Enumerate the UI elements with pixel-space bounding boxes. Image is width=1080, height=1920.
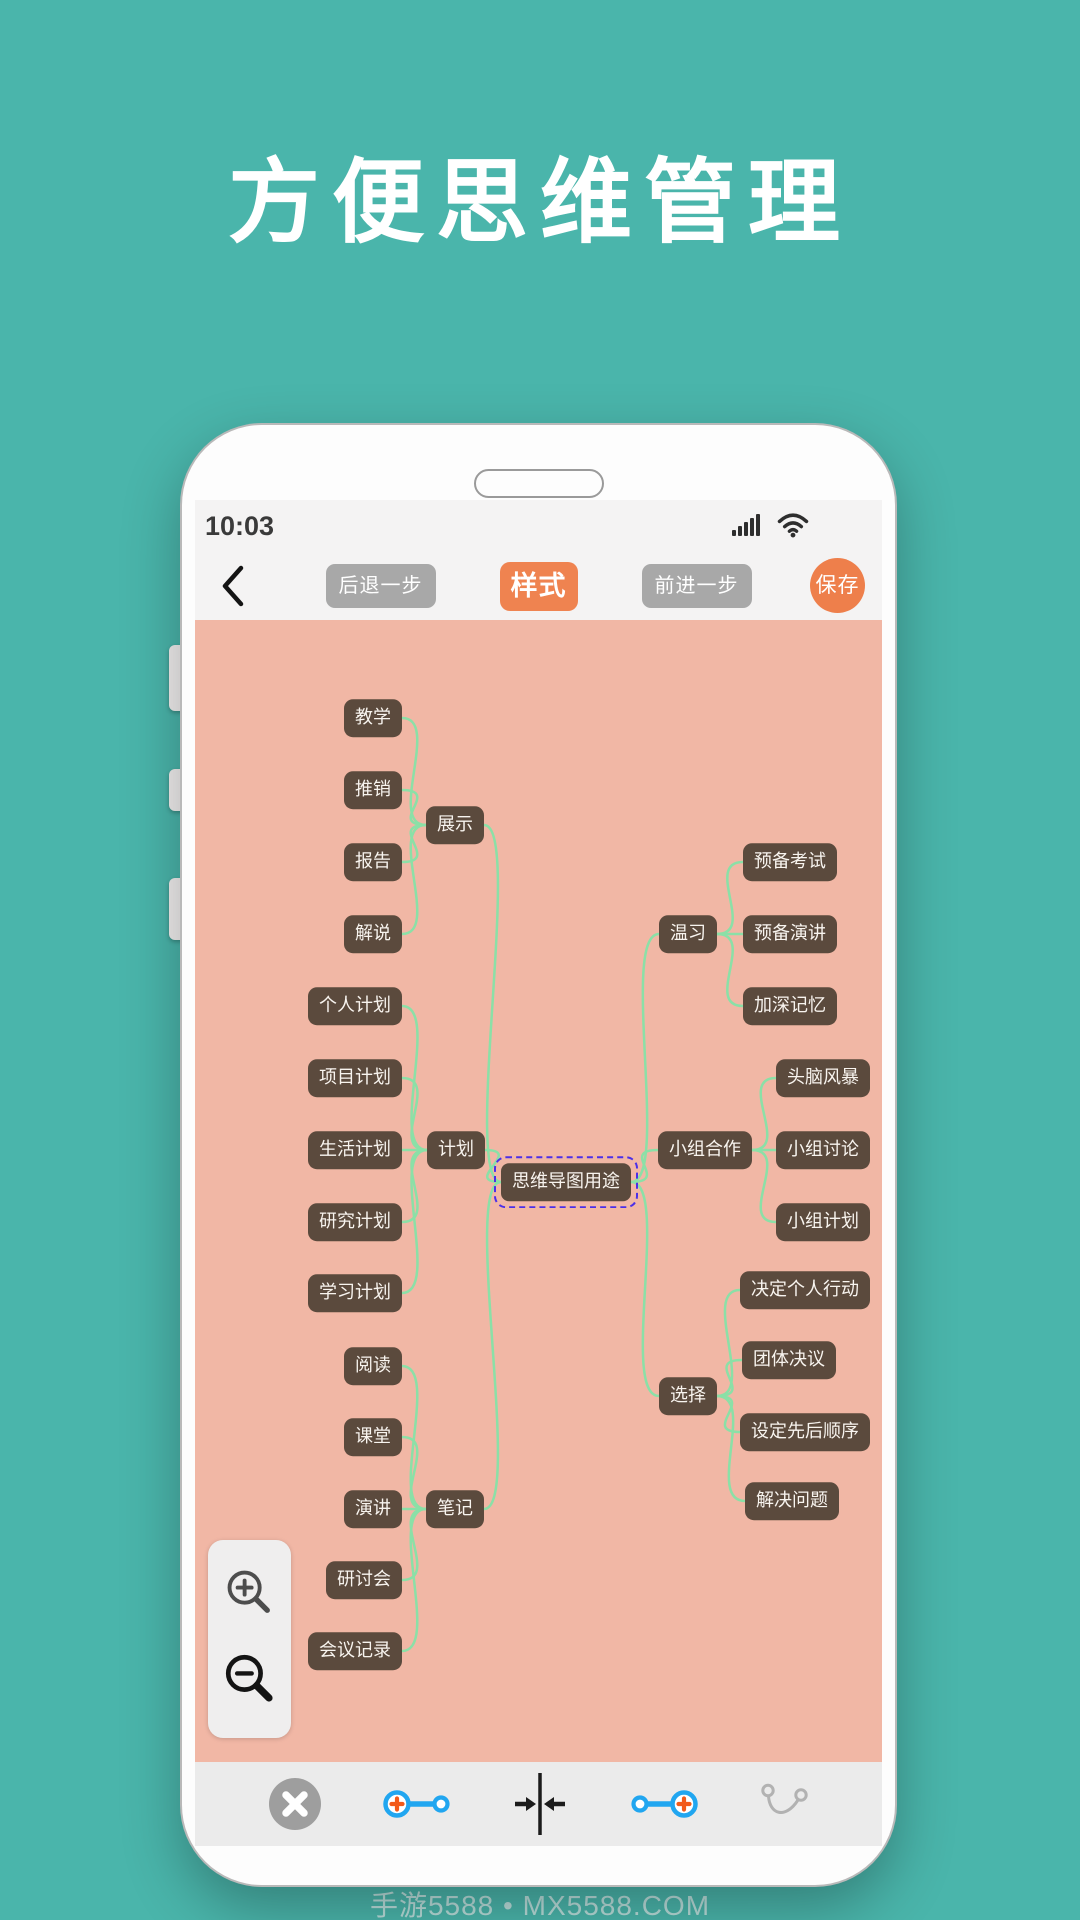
mindmap-edge <box>484 825 501 1182</box>
zoom-in-button[interactable] <box>222 1565 278 1626</box>
mindmap-node-gerenjihua[interactable]: 个人计划 <box>308 987 402 1025</box>
mindmap-node-jueding[interactable]: 决定个人行动 <box>740 1271 870 1309</box>
mindmap-node-jiaoxue[interactable]: 教学 <box>344 699 402 737</box>
zoom-out-button[interactable] <box>221 1650 279 1713</box>
mindmap-node-xuexijihua[interactable]: 学习计划 <box>308 1274 402 1312</box>
mindmap-node-tounaofengbao[interactable]: 头脑风暴 <box>776 1059 870 1097</box>
mindmap-node-huiyijilu[interactable]: 会议记录 <box>308 1632 402 1670</box>
mindmap-node-biji[interactable]: 笔记 <box>426 1490 484 1528</box>
mindmap-node-xiangmujihua[interactable]: 项目计划 <box>308 1059 402 1097</box>
mindmap-node-jieshuo[interactable]: 解说 <box>344 915 402 953</box>
mindmap-node-shenghuojihua[interactable]: 生活计划 <box>308 1131 402 1169</box>
mindmap-node-baogao[interactable]: 报告 <box>344 843 402 881</box>
mindmap-node-zhanshi[interactable]: 展示 <box>426 806 484 844</box>
mindmap-node-sheding[interactable]: 设定先后顺序 <box>740 1413 870 1451</box>
mindmap-edge <box>631 1182 659 1396</box>
mindmap-node-tuixiao[interactable]: 推销 <box>344 771 402 809</box>
mindmap-node-jiejue[interactable]: 解决问题 <box>745 1482 839 1520</box>
close-icon <box>268 1777 322 1831</box>
connection-style-button[interactable] <box>759 1782 809 1826</box>
connection-style-icon <box>759 1782 809 1826</box>
save-button[interactable]: 保存 <box>810 558 865 613</box>
style-button[interactable]: 样式 <box>500 562 578 611</box>
mindmap-node-jiashenjiyi[interactable]: 加深记忆 <box>743 987 837 1025</box>
mindmap-edge <box>717 862 743 934</box>
status-bar: 10:03 <box>195 500 882 552</box>
add-node-left-icon <box>381 1783 453 1825</box>
zoom-panel <box>208 1540 291 1738</box>
phone-speaker <box>474 469 604 498</box>
mindmap-edge <box>484 1182 501 1509</box>
phone-frame: 10:03 <box>182 425 895 1885</box>
mindmap-node-yuedu[interactable]: 阅读 <box>344 1347 402 1385</box>
mindmap-node-ketang[interactable]: 课堂 <box>344 1418 402 1456</box>
mindmap-node-yubeiyanjiang[interactable]: 预备演讲 <box>743 915 837 953</box>
mindmap-node-xuanze[interactable]: 选择 <box>659 1377 717 1415</box>
mindmap-node-yanjiang[interactable]: 演讲 <box>344 1490 402 1528</box>
mindmap-edge <box>717 934 743 1006</box>
mindmap-edge <box>752 1150 776 1222</box>
bottom-toolbar <box>195 1762 882 1846</box>
signal-icon <box>732 510 766 543</box>
wifi-icon <box>776 510 810 543</box>
mindmap-node-yantaohui[interactable]: 研讨会 <box>326 1561 402 1599</box>
mindmap-node-jihua[interactable]: 计划 <box>427 1131 485 1169</box>
mindmap-edge <box>717 1396 745 1501</box>
mindmap-canvas[interactable]: 思维导图用途教学推销展示报告解说个人计划项目计划生活计划计划研究计划学习计划阅读… <box>195 620 882 1762</box>
editor-toolbar: 后退一步 样式 前进一步 保存 <box>195 552 882 620</box>
mindmap-node-wenxi[interactable]: 温习 <box>659 915 717 953</box>
mindmap-node-xiaozutaolun[interactable]: 小组讨论 <box>776 1131 870 1169</box>
add-node-left-button[interactable] <box>381 1783 453 1825</box>
mindmap-node-yubeikaoshi[interactable]: 预备考试 <box>743 843 837 881</box>
undo-button[interactable]: 后退一步 <box>326 564 436 608</box>
collapse-button[interactable] <box>512 1770 568 1838</box>
add-node-right-button[interactable] <box>628 1783 700 1825</box>
mindmap-edge <box>631 934 659 1182</box>
mindmap-node-xiaozuhezuo[interactable]: 小组合作 <box>658 1131 752 1169</box>
mindmap-node-tuanti[interactable]: 团体决议 <box>742 1341 836 1379</box>
mindmap-node-root[interactable]: 思维导图用途 <box>501 1163 631 1201</box>
add-node-right-icon <box>628 1783 700 1825</box>
collapse-icon <box>512 1770 568 1838</box>
status-time: 10:03 <box>205 511 274 542</box>
mindmap-edge <box>752 1078 776 1150</box>
watermark-text: 手游5588 • MX5588.COM <box>0 1884 1080 1920</box>
close-button[interactable] <box>268 1777 322 1831</box>
mindmap-node-xiaozujihua[interactable]: 小组计划 <box>776 1203 870 1241</box>
mindmap-edge <box>717 1290 740 1396</box>
mindmap-node-yanjiujihua[interactable]: 研究计划 <box>308 1203 402 1241</box>
redo-button[interactable]: 前进一步 <box>642 564 752 608</box>
page-title: 方便思维管理 <box>0 128 1080 261</box>
